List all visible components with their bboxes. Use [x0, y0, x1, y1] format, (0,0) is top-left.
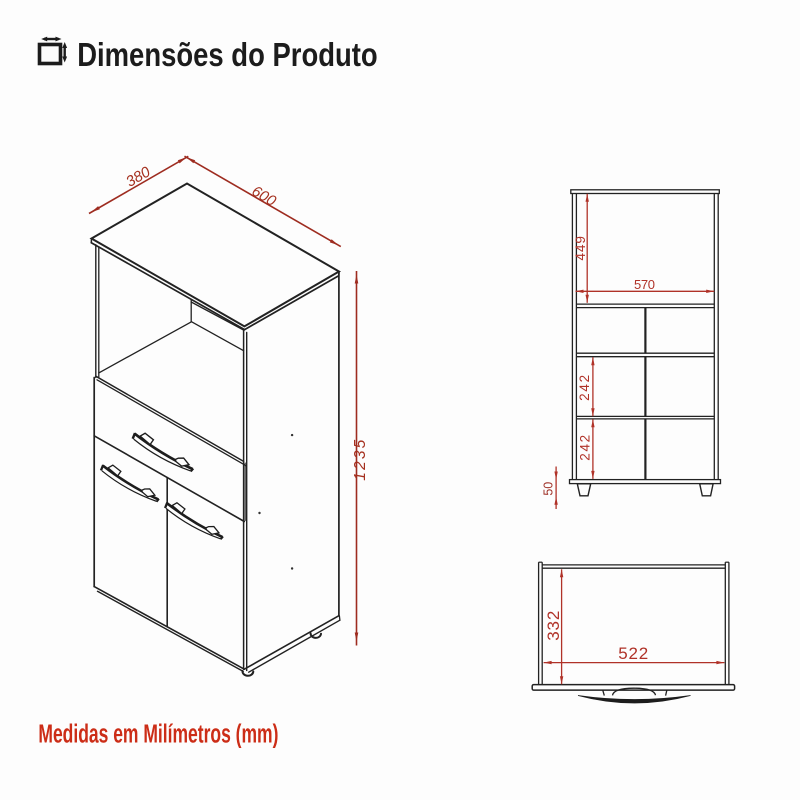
svg-text:570: 570 [634, 277, 655, 292]
svg-text:600: 600 [249, 183, 280, 211]
svg-text:522: 522 [618, 644, 648, 663]
svg-text:449: 449 [573, 236, 588, 260]
svg-text:1235: 1235 [352, 439, 369, 480]
svg-text:332: 332 [544, 611, 563, 641]
svg-text:242: 242 [577, 435, 592, 461]
svg-text:Medidas em Milímetros (mm): Medidas em Milímetros (mm) [38, 721, 278, 749]
svg-text:Dimensões do Produto: Dimensões do Produto [77, 37, 378, 74]
svg-text:50: 50 [542, 482, 556, 496]
svg-text:380: 380 [123, 163, 154, 191]
svg-text:242: 242 [577, 375, 592, 401]
